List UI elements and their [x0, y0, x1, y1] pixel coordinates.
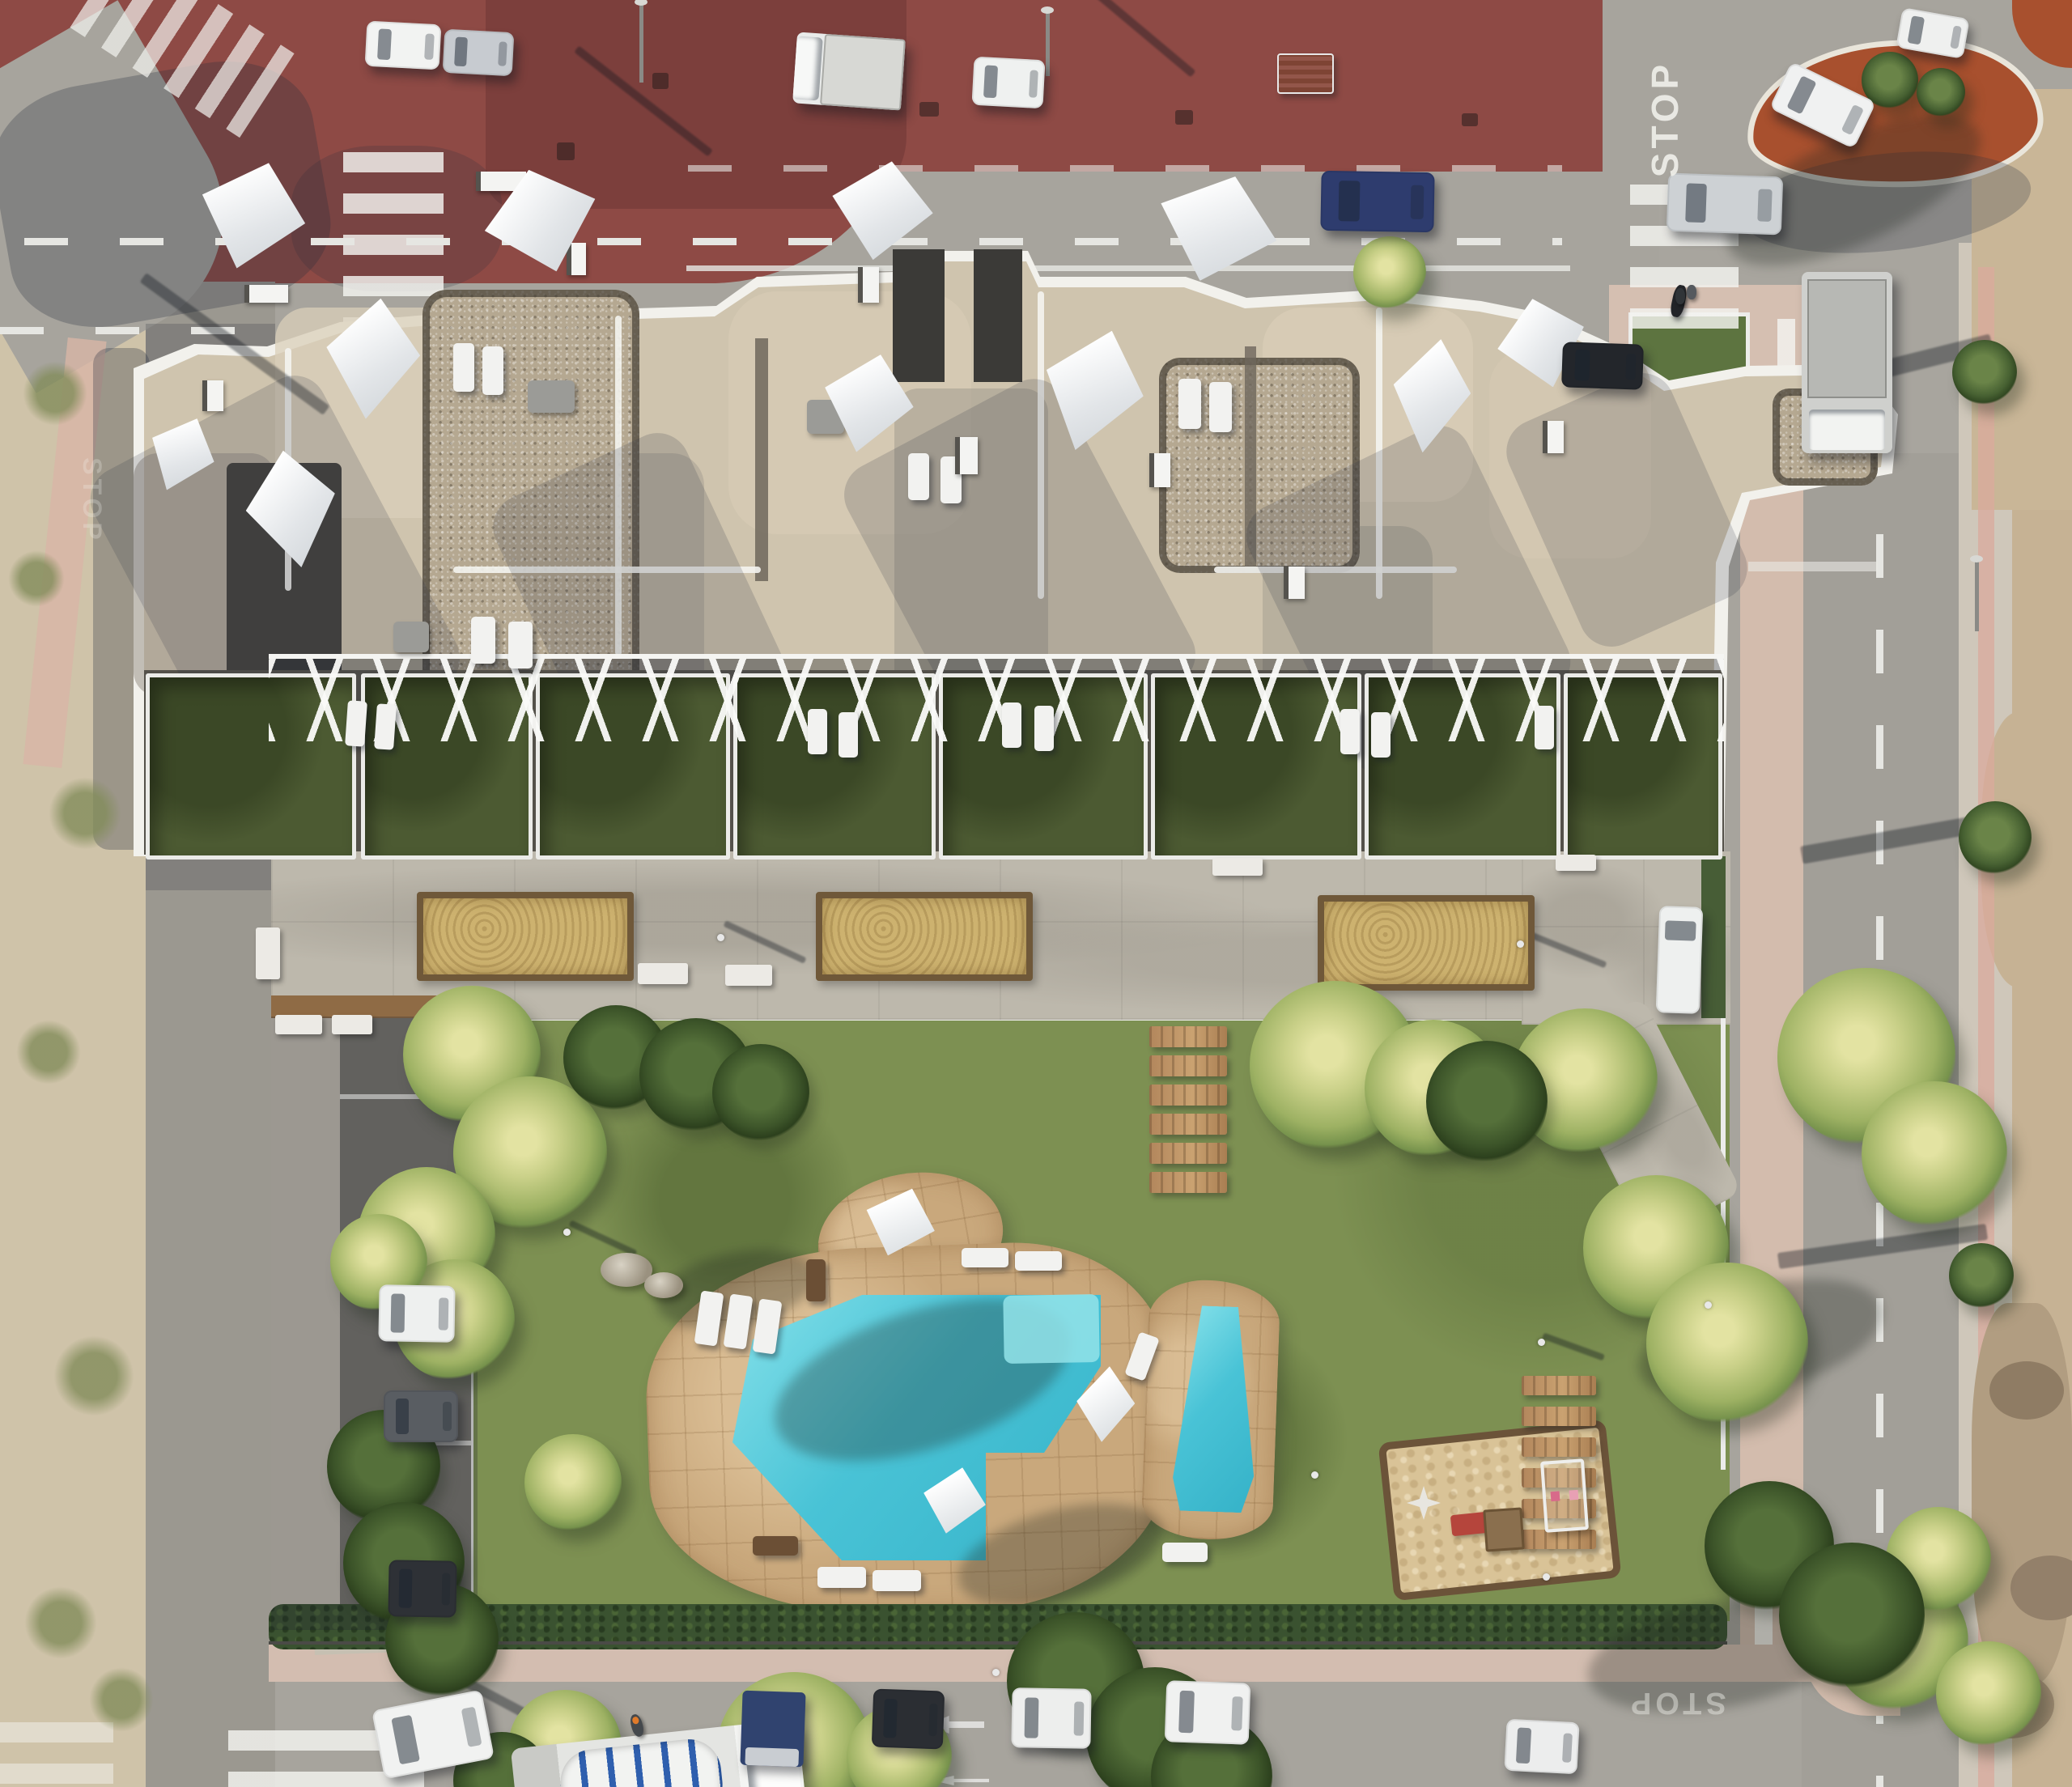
car-white-bottom-2: [1165, 1680, 1251, 1745]
stop-marking-left-road: STOP: [77, 457, 107, 544]
car-silver-road: [1667, 173, 1783, 236]
car-dark-left-drive: [388, 1560, 456, 1617]
playground-wood-table: [1483, 1507, 1525, 1551]
roof-divider-1: [755, 338, 768, 581]
pergola-band: [269, 654, 1724, 741]
garden-bench: [1522, 1407, 1596, 1426]
moto-rider-2: [1687, 285, 1696, 299]
garden-light: [1311, 1471, 1318, 1479]
roof-table: [393, 622, 429, 652]
pool-lounger: [1015, 1251, 1062, 1271]
roof-vent: [955, 437, 978, 474]
truck-flatbed-white: [1802, 272, 1892, 453]
terrace-bench: [256, 927, 280, 979]
terrace-lounger: [374, 703, 397, 750]
lane-solid-top: [686, 265, 1570, 271]
lot-weeds: [23, 361, 87, 426]
wood-step: [1149, 1085, 1227, 1106]
stair-tower-2: [974, 249, 1022, 382]
pool-lounger-dark: [806, 1259, 826, 1301]
terrace-bench: [275, 1015, 322, 1034]
street-lamp: [639, 5, 643, 83]
car-dark-road: [1561, 342, 1644, 389]
parking-lane-dash: [688, 165, 1562, 172]
garden-bush: [1779, 1543, 1925, 1688]
van-white-plaza: [971, 57, 1045, 109]
terrace-lounger: [1535, 706, 1554, 749]
pool-lounger: [962, 1248, 1008, 1267]
roof-vent: [202, 380, 223, 411]
car-white-right-drive: [1656, 906, 1704, 1014]
roof-vent: [244, 285, 288, 303]
stop-marking-top-right: STOP: [1643, 61, 1687, 177]
island-tree: [1917, 68, 1965, 117]
terrace-lounger: [839, 712, 858, 758]
pool-lounger: [873, 1570, 921, 1591]
garden-bench: [1522, 1437, 1596, 1457]
garden-light: [1543, 1573, 1550, 1581]
pool-lounger: [817, 1567, 866, 1588]
car-white-bottom-3: [1504, 1719, 1579, 1775]
crosswalk-left-road-bottom: [0, 1722, 113, 1787]
palm-tree: [524, 1434, 622, 1531]
playground-swing: [1540, 1458, 1589, 1533]
garden-bush: [712, 1044, 809, 1141]
dirt-rocky: [1972, 1303, 2072, 1683]
wood-step: [1149, 1143, 1227, 1164]
garden-bush: [1426, 1041, 1548, 1162]
street-lamp: [1046, 13, 1050, 76]
pool-kids-section: [1003, 1294, 1099, 1364]
pool-lounger-dark: [753, 1536, 798, 1556]
stair-tower-1: [893, 249, 945, 382]
wood-step: [1149, 1055, 1227, 1076]
garden-rock: [644, 1272, 683, 1298]
garden-bench: [1522, 1376, 1596, 1395]
pavement-mark: [1462, 113, 1478, 126]
roof-vent: [858, 267, 879, 303]
terrace-lounger: [1034, 706, 1054, 751]
dirt-crater-1: [1989, 1361, 2064, 1420]
palm-tree: [1936, 1641, 2041, 1747]
sidewalk-tree: [1949, 1243, 2014, 1308]
roof-lounger: [508, 622, 533, 669]
roof-lounger: [482, 346, 503, 395]
truck-blue-bottom: [740, 1691, 805, 1768]
car-white-left-drive: [378, 1284, 455, 1343]
terrace-light: [717, 934, 724, 941]
palm-tree: [1646, 1263, 1808, 1424]
street-lamp: [1975, 562, 1979, 631]
roof-vent: [567, 243, 586, 275]
terrace-lounger: [1340, 709, 1360, 754]
lot-weeds: [49, 777, 121, 850]
truck-box-white: [792, 32, 906, 110]
lane-dash-left-curve: [0, 327, 272, 334]
pavement-mark: [919, 102, 939, 117]
wood-step: [1149, 1114, 1227, 1135]
sand-planter-3: [1318, 895, 1535, 991]
right-drive-green-strip: [1701, 856, 1726, 1018]
car-gray-left-drive: [384, 1390, 458, 1442]
garden-light: [1538, 1339, 1545, 1346]
terrace-light: [1517, 940, 1524, 948]
terrace-bench: [332, 1015, 372, 1034]
roof-vent: [1543, 421, 1564, 453]
terrace-bench: [638, 963, 688, 984]
garden-light: [563, 1229, 571, 1236]
terrace-bench: [1556, 855, 1596, 871]
lot-weeds: [24, 1586, 97, 1659]
car-white-bottom-1: [1011, 1687, 1091, 1749]
terrace-lounger: [1002, 702, 1021, 748]
garden-light: [1705, 1301, 1712, 1309]
lot-weeds: [16, 1020, 81, 1085]
garden-light: [992, 1669, 1000, 1676]
terrace-bench: [725, 965, 772, 986]
roof-table: [528, 380, 575, 413]
roof-lounger: [1178, 379, 1201, 429]
roof-vent: [1284, 567, 1305, 599]
garden-bench: [1522, 1530, 1596, 1549]
sand-planter-1: [417, 892, 634, 981]
suv-dark-blue: [1320, 171, 1434, 232]
pavement-mark: [557, 142, 575, 160]
terrace-bench: [1212, 858, 1263, 876]
moto-rider-1: [1675, 288, 1685, 304]
roof-lounger: [471, 617, 495, 664]
lot-weeds: [8, 550, 65, 607]
stop-line-right-road: [1748, 562, 1878, 571]
sidewalk-tree: [1952, 340, 2017, 405]
car-dark-bottom: [872, 1688, 945, 1749]
lot-weeds: [89, 1667, 154, 1732]
terrace-lounger: [808, 709, 827, 754]
terrace-lounger: [1371, 712, 1391, 758]
roof-lounger: [453, 343, 474, 392]
aerial-site-render: STOP STOP STOP: [0, 0, 2072, 1787]
pavement-mark: [1175, 110, 1193, 125]
lot-weeds: [53, 1335, 134, 1416]
roof-vent: [1149, 453, 1170, 487]
car-white-plaza: [365, 21, 442, 70]
stop-marking-bottom-right: STOP: [1627, 1685, 1726, 1720]
palm-tree-street: [1353, 236, 1426, 309]
sand-planter-2: [816, 892, 1033, 981]
wood-step: [1149, 1026, 1227, 1047]
palm-tree-road: [1862, 1081, 2007, 1227]
roof-lounger: [1209, 382, 1232, 432]
sidewalk-tree: [1959, 801, 2032, 874]
terrace-lounger: [345, 700, 367, 747]
pavement-mark: [652, 73, 669, 89]
pool-lounger: [1162, 1543, 1208, 1562]
car-silver-plaza: [443, 29, 515, 76]
street-bench: [1277, 53, 1334, 94]
wood-step: [1149, 1172, 1227, 1193]
roof-lounger: [908, 453, 929, 500]
